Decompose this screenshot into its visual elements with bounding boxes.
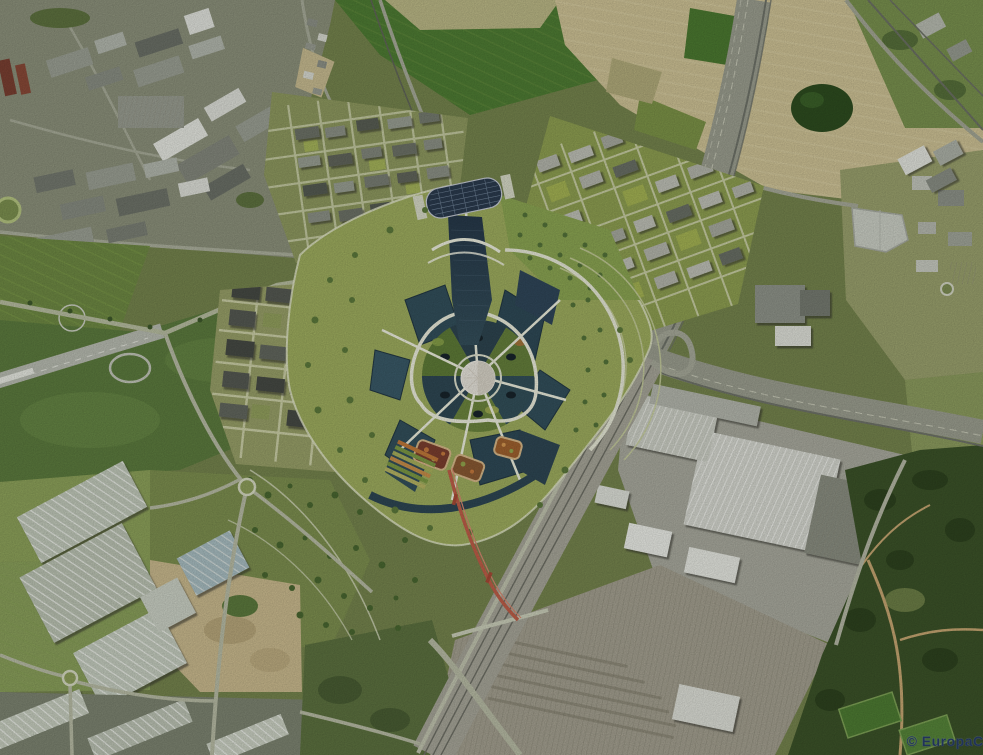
watermark-copyright: © EuropaCi <box>907 733 983 749</box>
aerial-photo <box>0 0 983 755</box>
aerial-screenshot: © EuropaCi <box>0 0 983 755</box>
grain-overlay <box>0 0 983 755</box>
